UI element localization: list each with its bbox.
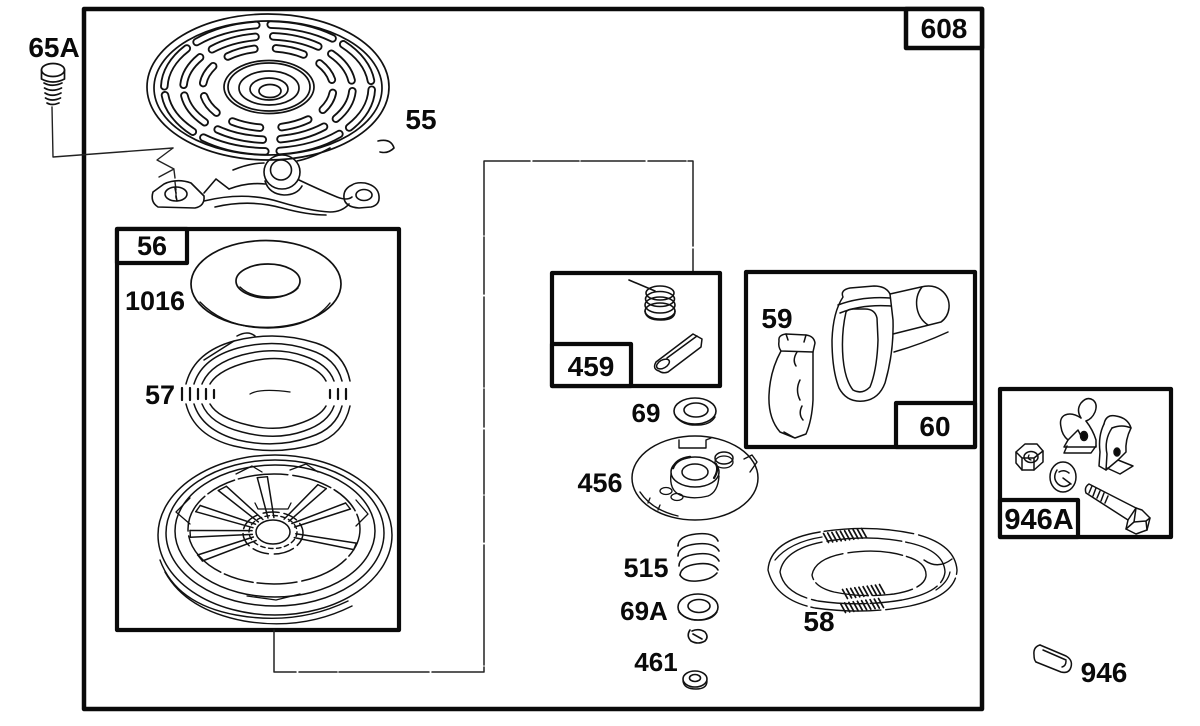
svg-text:69A: 69A — [620, 596, 668, 626]
svg-text:60: 60 — [919, 411, 950, 442]
svg-text:69: 69 — [632, 398, 661, 428]
svg-text:456: 456 — [577, 468, 622, 498]
svg-text:65A: 65A — [28, 32, 79, 63]
svg-text:946A: 946A — [1004, 504, 1073, 536]
svg-text:1016: 1016 — [125, 286, 185, 316]
svg-text:59: 59 — [761, 303, 792, 334]
svg-text:515: 515 — [623, 553, 668, 583]
svg-text:55: 55 — [405, 104, 436, 135]
svg-text:459: 459 — [568, 351, 615, 382]
svg-text:58: 58 — [803, 606, 834, 637]
svg-text:608: 608 — [921, 13, 968, 44]
svg-text:946: 946 — [1081, 657, 1128, 688]
svg-text:461: 461 — [634, 647, 677, 677]
svg-text:56: 56 — [137, 231, 167, 261]
svg-text:57: 57 — [145, 380, 175, 410]
